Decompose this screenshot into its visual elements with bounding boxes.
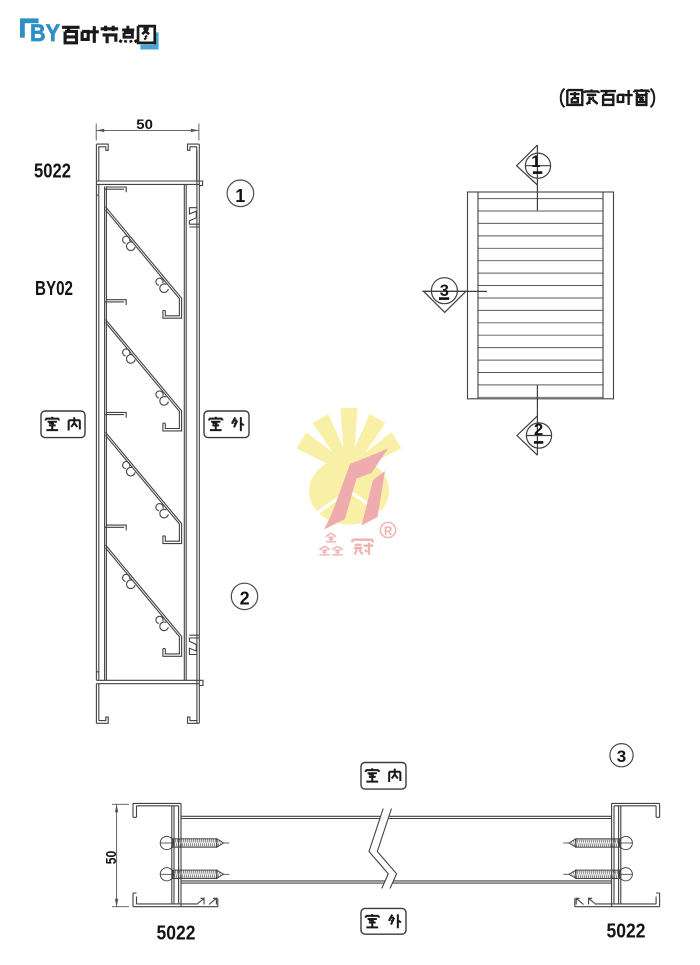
svg-text:BY02: BY02	[35, 277, 73, 300]
svg-text:5022: 5022	[157, 922, 196, 945]
svg-text:5022: 5022	[34, 159, 71, 182]
svg-text:1: 1	[531, 153, 540, 171]
svg-text:50: 50	[104, 851, 120, 865]
svg-text:5022: 5022	[607, 920, 646, 943]
svg-text:3: 3	[617, 747, 626, 766]
svg-text:2: 2	[534, 421, 543, 439]
svg-text:1: 1	[235, 186, 245, 206]
svg-text:3: 3	[440, 282, 449, 300]
svg-text:R: R	[384, 526, 393, 538]
svg-text:50: 50	[136, 117, 153, 133]
svg-text:BY: BY	[30, 20, 60, 47]
svg-text:2: 2	[240, 589, 250, 609]
